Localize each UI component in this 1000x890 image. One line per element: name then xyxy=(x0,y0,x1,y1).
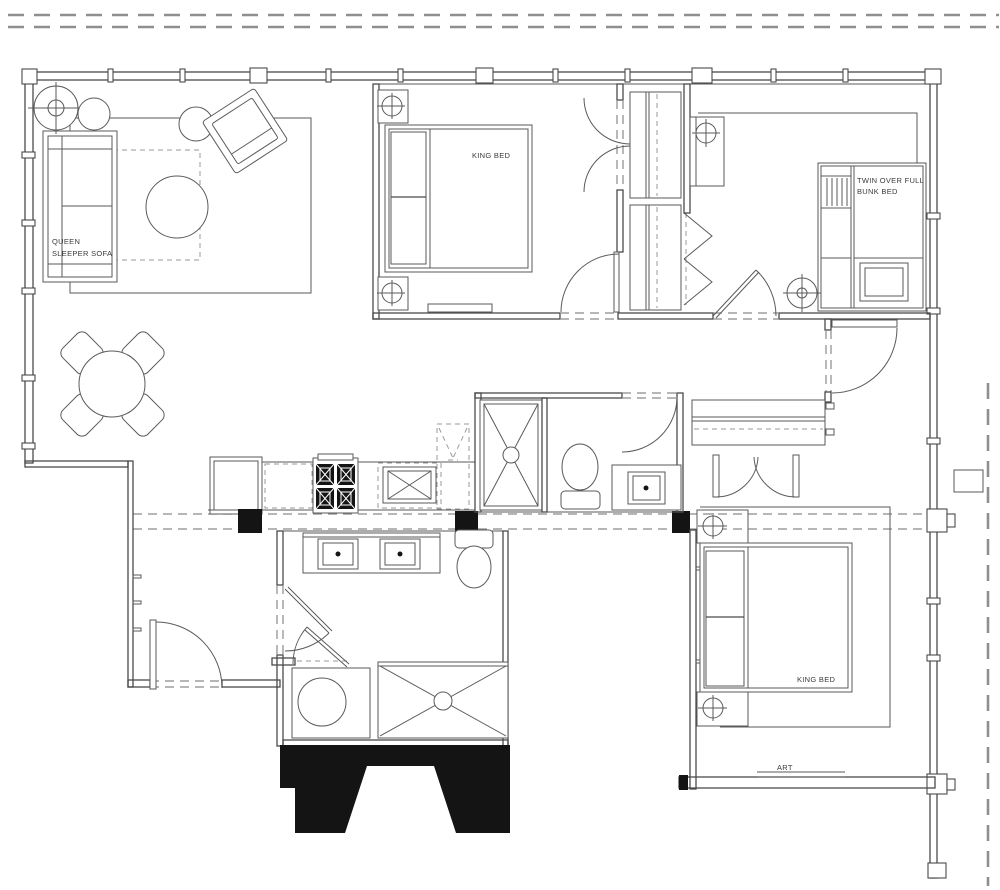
bunk-bed: TWIN OVER FULL BUNK BED xyxy=(818,163,926,311)
bunk-label-line1: TWIN OVER FULL xyxy=(857,176,924,185)
double-vanity-icon xyxy=(303,533,440,573)
cooktop-icon xyxy=(313,454,358,513)
refrigerator-icon xyxy=(210,457,262,514)
washer-icon xyxy=(292,668,370,738)
kitchen-sink-icon xyxy=(378,463,441,508)
bathroom2-door-icon xyxy=(285,587,332,651)
bunk-room-door-icon xyxy=(713,270,776,318)
king-bed-3: KING BED xyxy=(700,543,852,692)
armchair-icon xyxy=(202,88,288,174)
vestibule-door-icon xyxy=(832,320,897,393)
toilet-icon xyxy=(561,444,600,509)
vanity-sink-icon xyxy=(612,465,681,510)
toilet-icon xyxy=(455,530,493,588)
side-table-icon xyxy=(78,98,110,130)
bifold-door-icon xyxy=(684,213,712,259)
nightstand-icon xyxy=(377,277,408,310)
sofa-label-line2: SLEEPER SOFA xyxy=(52,249,112,258)
bedroom-3: KING BED ART xyxy=(679,507,935,790)
cabinet-dashed xyxy=(265,464,312,508)
bathroom1-door-icon xyxy=(622,397,677,452)
nightstand-icon xyxy=(697,692,748,726)
closet-double-doors-icon xyxy=(713,455,799,497)
bedroom1-bed-label: KING BED xyxy=(472,151,511,160)
floor-lamp-icon xyxy=(28,82,84,134)
closet-a xyxy=(584,92,681,198)
art-shelf: ART xyxy=(757,763,845,777)
dining-set xyxy=(58,329,167,439)
art-label: ART xyxy=(777,763,793,772)
shower-icon xyxy=(378,662,508,738)
bathroom-2 xyxy=(272,530,508,746)
entry-door-icon xyxy=(150,620,222,689)
bedroom1-door-icon xyxy=(561,252,619,312)
bunk-room: TWIN OVER FULL BUNK BED xyxy=(684,84,926,318)
closet-b xyxy=(630,205,712,310)
site-boundary-lines xyxy=(8,15,999,27)
console-dresser-icon xyxy=(692,400,834,445)
building-core xyxy=(280,745,510,833)
nightstand-icon xyxy=(697,510,748,543)
bathroom-1 xyxy=(475,393,683,512)
shower-icon xyxy=(480,398,547,512)
pantry-cabinet-dashed xyxy=(437,424,469,509)
bench-icon xyxy=(428,304,492,312)
sofa-label-line1: QUEEN xyxy=(52,237,80,246)
dining-table-icon xyxy=(79,351,145,417)
living-room: QUEEN SLEEPER SOFA xyxy=(28,82,311,439)
queen-sleeper-sofa: QUEEN SLEEPER SOFA xyxy=(43,131,117,282)
floor-plan-drawing: QUEEN SLEEPER SOFA xyxy=(0,0,1000,890)
floor-plan: QUEEN SLEEPER SOFA xyxy=(0,0,1000,890)
nightstand-icon xyxy=(377,90,408,123)
table-lamp-icon xyxy=(783,274,821,312)
king-bed-1: KING BED xyxy=(385,125,532,272)
coffee-table-icon xyxy=(146,176,208,238)
exterior-equipment xyxy=(954,470,983,492)
bunk-label-line2: BUNK BED xyxy=(857,187,898,196)
desk-icon xyxy=(690,117,724,186)
bedroom3-bed-label: KING BED xyxy=(797,675,836,684)
vestibule xyxy=(692,319,897,497)
bifold-door-icon xyxy=(684,259,712,305)
kitchen xyxy=(208,424,475,514)
